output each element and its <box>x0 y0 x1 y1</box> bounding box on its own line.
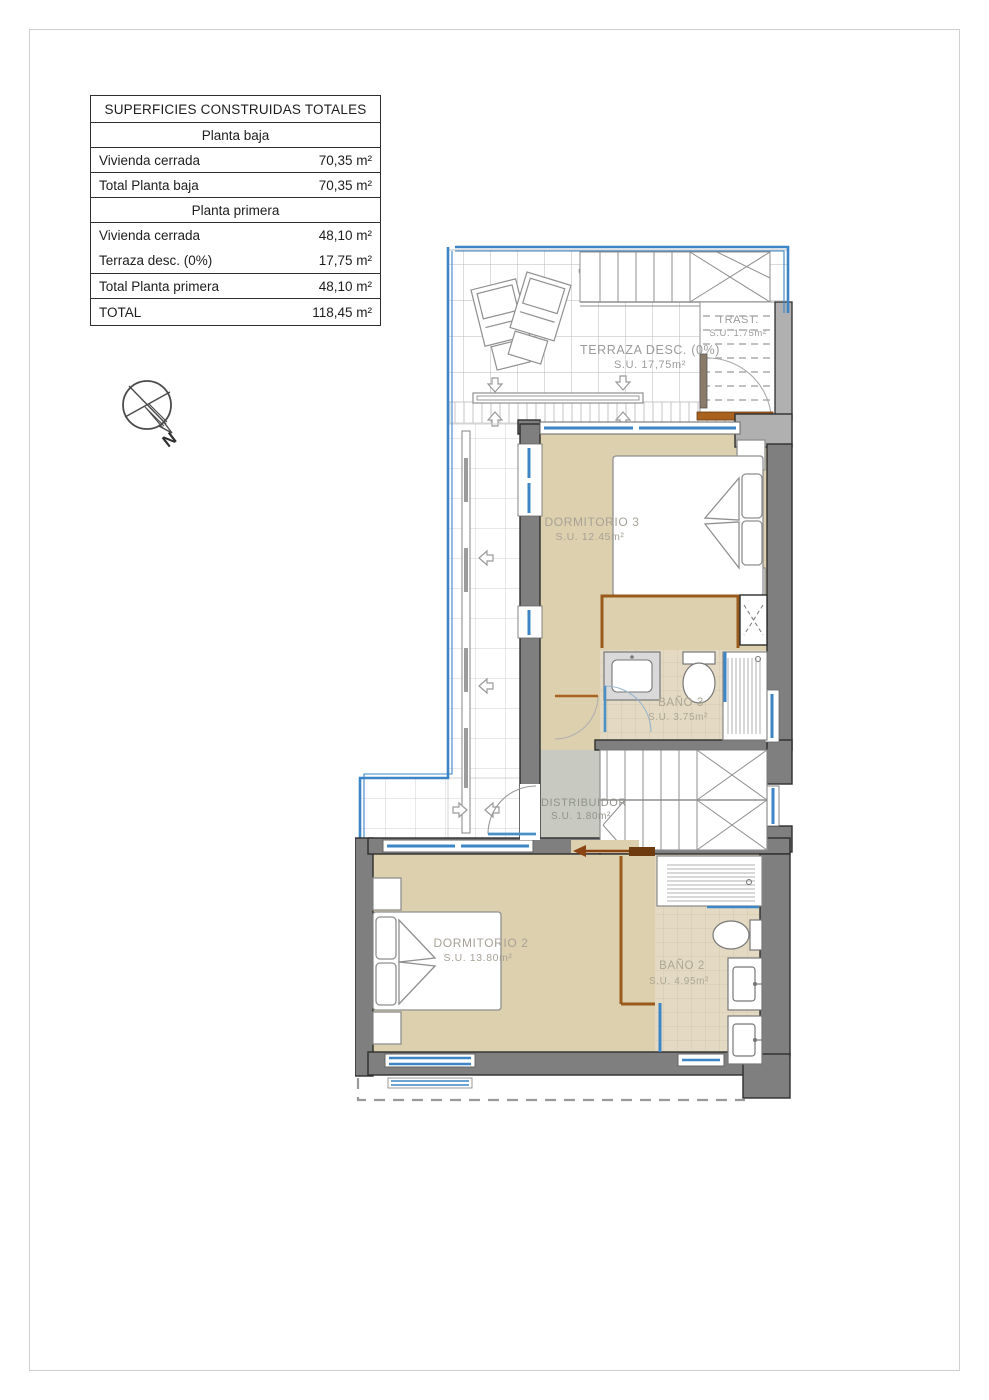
toilet-icon <box>683 652 715 703</box>
room-area-terraza: S.U. 17,75m² <box>614 359 686 371</box>
row-label: Vivienda cerrada <box>99 228 200 243</box>
room-label-terraza: TERRAZA DESC. (0%) <box>580 343 720 357</box>
table-row: Total Planta primera 48,10 m² <box>91 274 380 299</box>
shower-icon <box>657 856 762 907</box>
row-label: Total Planta primera <box>99 279 219 294</box>
upper-stairs <box>580 252 770 306</box>
duct-x-icon <box>740 595 767 645</box>
room-area-dormitorio3: S.U. 12.45m² <box>555 531 624 543</box>
row-label: Total Planta baja <box>99 178 199 193</box>
section-header-planta-primera: Planta primera <box>91 198 380 223</box>
toilet-icon <box>713 920 762 950</box>
table-row-group: Vivienda cerrada 48,10 m² Terraza desc. … <box>91 223 380 274</box>
room-label-distribuidor: DISTRIBUIDOR <box>541 797 627 809</box>
door-leaf <box>700 354 707 408</box>
table-row: Total Planta baja 70,35 m² <box>91 173 380 198</box>
room-label-dormitorio2: DORMITORIO 2 <box>434 936 529 950</box>
floor-plan: TRAST. S.U. 1.75m² <box>355 228 795 1108</box>
sink-icon <box>728 1016 762 1064</box>
sink-icon <box>604 652 660 700</box>
table-row: Vivienda cerrada 48,10 m² <box>91 223 380 248</box>
row-label: Terraza desc. (0%) <box>99 253 212 268</box>
door-leaf <box>629 847 655 856</box>
storage-room: TRAST. S.U. 1.75m² <box>697 302 792 420</box>
total-label: TOTAL <box>99 305 141 320</box>
north-compass-icon: N <box>116 376 188 464</box>
room-area-bano3: S.U. 3.75m² <box>648 712 708 723</box>
sink-icon <box>728 958 762 1010</box>
row-value: 70,35 m² <box>319 178 372 193</box>
areas-table: SUPERFICIES CONSTRUIDAS TOTALES Planta b… <box>90 95 381 326</box>
room-label-bano3: BAÑO 3 <box>658 696 704 709</box>
room-area-trastero: S.U. 1.75m² <box>709 328 766 339</box>
row-label: Vivienda cerrada <box>99 153 200 168</box>
room-label-bano2: BAÑO 2 <box>659 959 705 972</box>
wall <box>775 302 792 420</box>
table-total-row: TOTAL 118,45 m² <box>91 299 380 325</box>
table-row: Terraza desc. (0%) 17,75 m² <box>91 248 380 273</box>
shower-icon <box>723 652 767 740</box>
bench <box>473 393 643 403</box>
table-row: Vivienda cerrada 70,35 m² <box>91 148 380 173</box>
areas-table-title: SUPERFICIES CONSTRUIDAS TOTALES <box>91 96 380 123</box>
room-label-trastero: TRAST. <box>717 314 759 326</box>
row-value: 70,35 m² <box>319 153 372 168</box>
room-area-dormitorio2: S.U. 13.80m² <box>443 952 512 964</box>
room-label-dormitorio3: DORMITORIO 3 <box>545 515 640 529</box>
section-header-planta-baja: Planta baja <box>91 123 380 148</box>
north-label: N <box>159 428 181 451</box>
room-area-distribuidor: S.U. 1.80m² <box>551 811 611 822</box>
room-area-bano2: S.U. 4.95m² <box>649 976 709 987</box>
vestibule-floor <box>540 650 600 750</box>
